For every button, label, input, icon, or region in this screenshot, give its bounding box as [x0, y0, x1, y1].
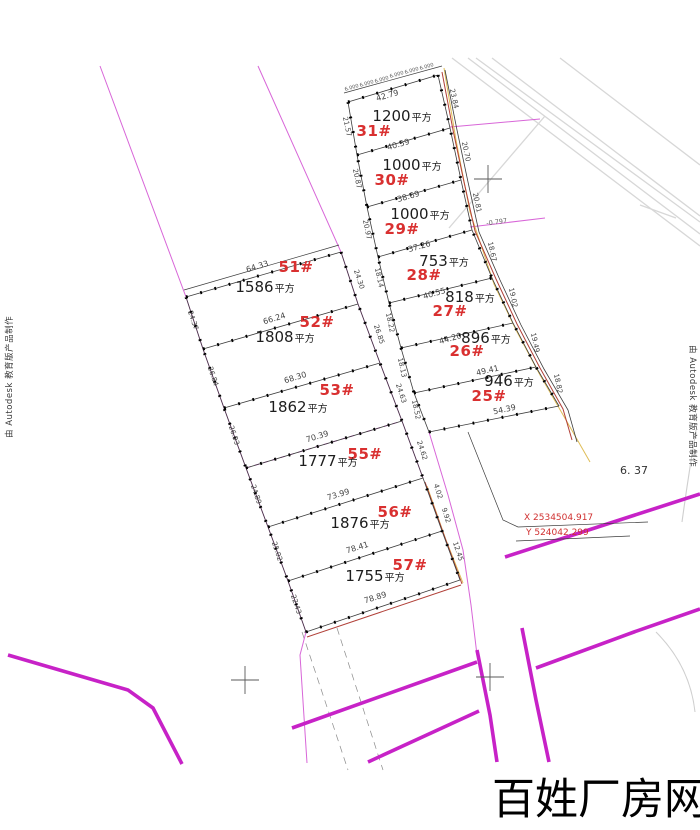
left-group-labels: 51# 1586平方 52# 1808平方 53# 1862平方 55# 177… [235, 258, 427, 585]
offset-note: -0.797 [486, 217, 508, 228]
cross-mark [231, 666, 259, 694]
elevation-label: 6. 37 [620, 464, 648, 477]
parcel-id: 56# [378, 503, 413, 521]
dim-right: 19.02 [507, 287, 519, 308]
parcel-id: 57# [393, 556, 428, 574]
parcel-area: 1200平方 [372, 107, 431, 125]
dim-bottom: 78.41 [345, 540, 370, 555]
cad-site-plan: X 2534504.917 Y 524042.299 51# 1586平方 52… [0, 0, 700, 830]
dim-right: 23.84 [448, 88, 460, 110]
dim-bottom: 78.89 [363, 590, 388, 605]
edu-stamp-left: 由 Autodesk 教育版产品制作 [4, 316, 15, 438]
road-curve-bottom-right [656, 632, 695, 712]
parcel-area: 1586平方 [235, 278, 294, 296]
road-bundle-lines [452, 58, 700, 246]
dim-left: 26.93 [227, 425, 241, 447]
road-branch-line [449, 116, 545, 228]
road-diagonal-upper [292, 662, 477, 728]
dim-left: 24.37 [186, 310, 200, 332]
parcel-area: 753平方 [419, 252, 469, 270]
dim-left: 18.52 [410, 399, 422, 420]
site-watermark: 百姓厂房网 [492, 775, 700, 825]
survey-x-label: X 2534504.917 [524, 513, 593, 523]
seg-dim: 6.000 [344, 83, 359, 93]
survey-y-label: Y 524042.299 [525, 528, 589, 538]
survey-point-annotation: X 2534504.917 Y 524042.299 [468, 432, 648, 541]
dim-left: 20.87 [351, 168, 363, 189]
seg-dim: 6.000 [374, 75, 389, 85]
dim-left: 18.14 [373, 267, 385, 289]
seg-dim: 6.000 [359, 79, 374, 89]
parcel-area: 896平方 [461, 329, 511, 347]
dim-right: 9.92 [440, 507, 452, 524]
dim-right: 24.30 [352, 269, 366, 291]
parcel-area: 1862平方 [268, 398, 327, 416]
parcel-area: 946平方 [484, 372, 534, 390]
parcel-id: 53# [320, 381, 355, 399]
road-east [505, 494, 700, 557]
edu-stamp-right: 由 Autodesk 教育版产品制作 [687, 345, 698, 467]
plat-drawing-canvas: X 2534504.917 Y 524042.299 51# 1586平方 52… [0, 0, 700, 830]
parcel-id: 51# [279, 258, 314, 276]
leader-and-underlines [468, 432, 648, 541]
dim-left: 25.02 [270, 541, 284, 563]
parcel-area: 1000平方 [390, 205, 449, 223]
road-bottom-left [8, 655, 182, 764]
dim-left: 18.22 [384, 312, 396, 333]
road-vertical-right [522, 628, 549, 762]
road-diagonal-lower [368, 711, 479, 762]
parcel-id: 52# [300, 313, 335, 331]
dim-left: 26.84 [206, 366, 220, 388]
parcel-area: 818平方 [445, 288, 495, 306]
dim-bottom: 66.24 [262, 311, 287, 326]
dim-right: 18.82 [552, 373, 564, 394]
dim-top: 64.33 [245, 259, 270, 274]
road-ne-diagonal [536, 609, 700, 668]
dim-bottom: 40.55 [422, 286, 446, 301]
dim-right: 24.63 [394, 383, 408, 405]
dim-right: 4.02 [432, 483, 444, 500]
dim-left: 24.89 [249, 484, 263, 506]
dim-bottom: 73.99 [326, 487, 351, 502]
grid-cross-marks [231, 165, 504, 694]
right-group-labels: 31# 1200平方 30# 1000平方 29# 1000平方 28# 753… [357, 107, 534, 405]
dim-bottom: 68.30 [283, 370, 308, 385]
dim-bottom: 38.69 [396, 189, 420, 204]
dim-right: 26.85 [372, 324, 386, 346]
cross-mark [474, 165, 502, 193]
dim-left: 18.13 [396, 357, 408, 378]
dim-top: 42.79 [375, 88, 399, 103]
dim-right: 24.62 [415, 440, 429, 462]
parcel-area: 1000平方 [382, 156, 441, 174]
dim-left: 20.97 [361, 219, 373, 240]
road-vertical-left [477, 650, 497, 762]
magenta-roads [8, 494, 700, 764]
dim-bottom: 70.39 [305, 429, 330, 444]
dim-left: 22.43 [289, 594, 303, 616]
